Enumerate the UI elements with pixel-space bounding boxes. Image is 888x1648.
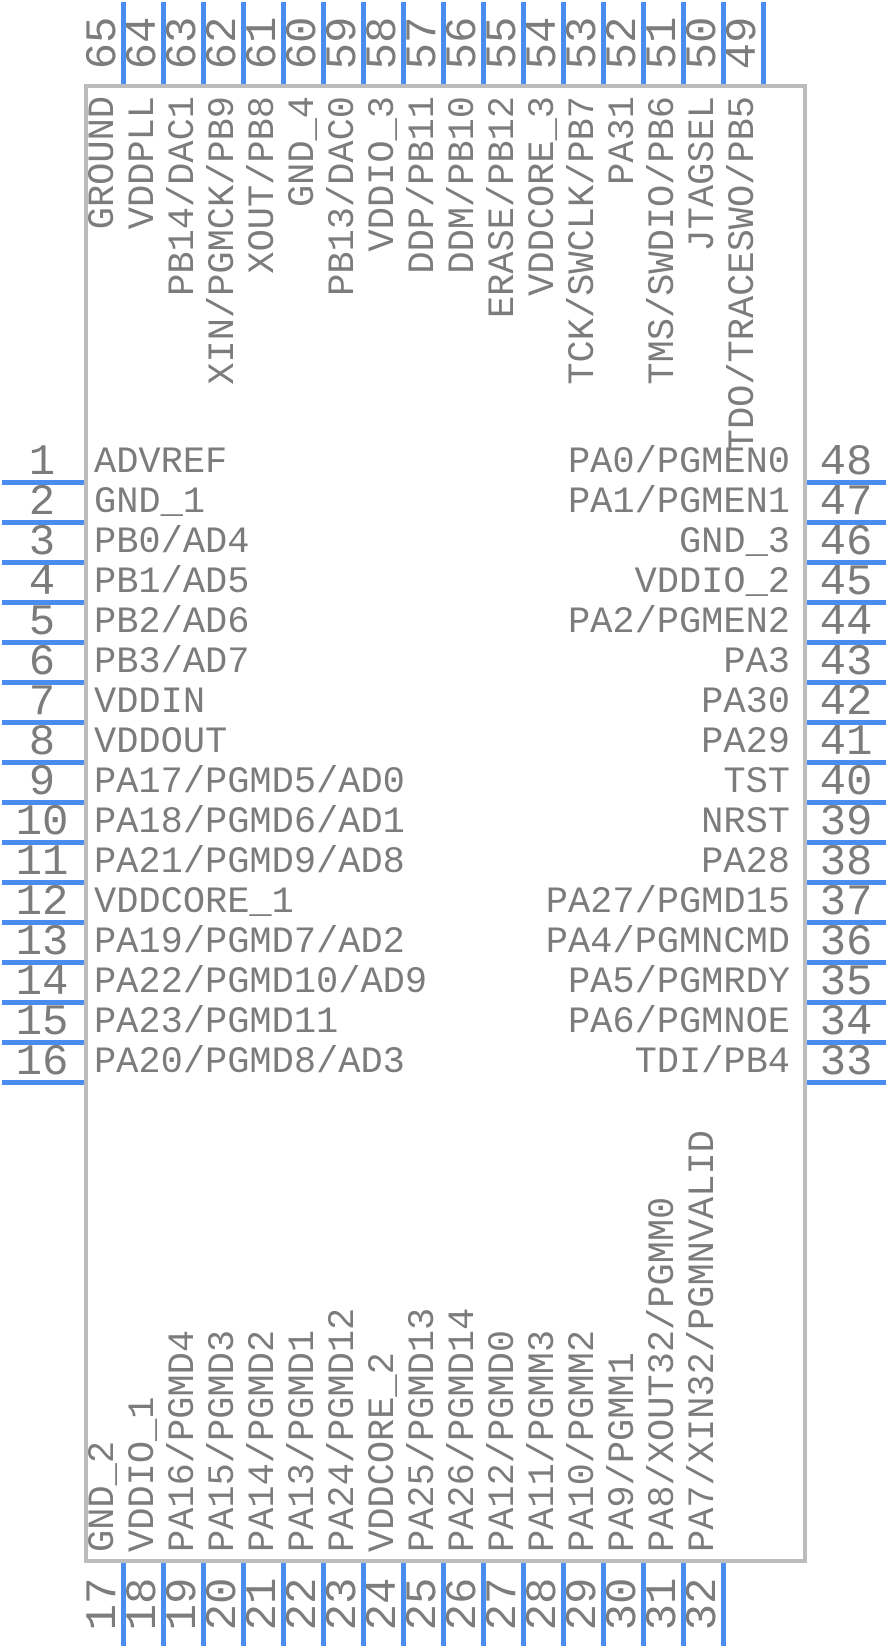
pin-46-label: GND_3 <box>310 521 790 565</box>
pin-32-number: 32 <box>682 1562 726 1646</box>
pin-22-label: PA13/PGMD1 <box>282 1087 326 1552</box>
pin-48-label: PA0/PGMEN0 <box>310 441 790 485</box>
pin-38-label: PA28 <box>310 841 790 885</box>
pin-45-label: VDDIO_2 <box>310 561 790 605</box>
pin-23-label: PA24/PGMD12 <box>322 1087 366 1552</box>
pin-27-label: PA12/PGMD0 <box>482 1087 526 1552</box>
pin-31-label: PA8/XOUT32/PGMM0 <box>642 1087 686 1552</box>
pin-17-label: GND_2 <box>82 1087 126 1552</box>
pin-49-number: 49 <box>722 2 766 84</box>
pin-32-label: PA7/XIN32/PGMNVALID <box>682 1087 726 1552</box>
pin-35-label: PA5/PGMRDY <box>310 961 790 1005</box>
pin-20-label: PA15/PGMD3 <box>202 1087 246 1552</box>
pin-18-label: VDDIO_1 <box>122 1087 166 1552</box>
pin-24-label: VDDCORE_2 <box>362 1087 406 1552</box>
pin-47-label: PA1/PGMEN1 <box>310 481 790 525</box>
pin-34-label: PA6/PGMNOE <box>310 1001 790 1045</box>
pin-41-label: PA29 <box>310 721 790 765</box>
pin-19-label: PA16/PGMD4 <box>162 1087 206 1552</box>
pin-33-number: 33 <box>805 1041 887 1085</box>
pin-39-label: NRST <box>310 801 790 845</box>
pin-30-label: PA9/PGMM1 <box>602 1087 646 1552</box>
pin-42-label: PA30 <box>310 681 790 725</box>
pin-37-label: PA27/PGMD15 <box>310 881 790 925</box>
pin-36-label: PA4/PGMNCMD <box>310 921 790 965</box>
pin-26-label: PA26/PGMD14 <box>442 1087 486 1552</box>
pin-28-label: PA11/PGMM3 <box>522 1087 566 1552</box>
pin-21-label: PA14/PGMD2 <box>242 1087 286 1552</box>
pin-43-label: PA3 <box>310 641 790 685</box>
pin-29-label: PA10/PGMM2 <box>562 1087 606 1552</box>
pin-16-number: 16 <box>0 1041 84 1085</box>
pinout-canvas: 65GROUND64VDDPLL63PB14/DAC162XIN/PGMCK/P… <box>0 0 888 1648</box>
pin-44-label: PA2/PGMEN2 <box>310 601 790 645</box>
pin-33-label: TDI/PB4 <box>310 1041 790 1085</box>
pin-40-label: TST <box>310 761 790 805</box>
pin-25-label: PA25/PGMD13 <box>402 1087 446 1552</box>
